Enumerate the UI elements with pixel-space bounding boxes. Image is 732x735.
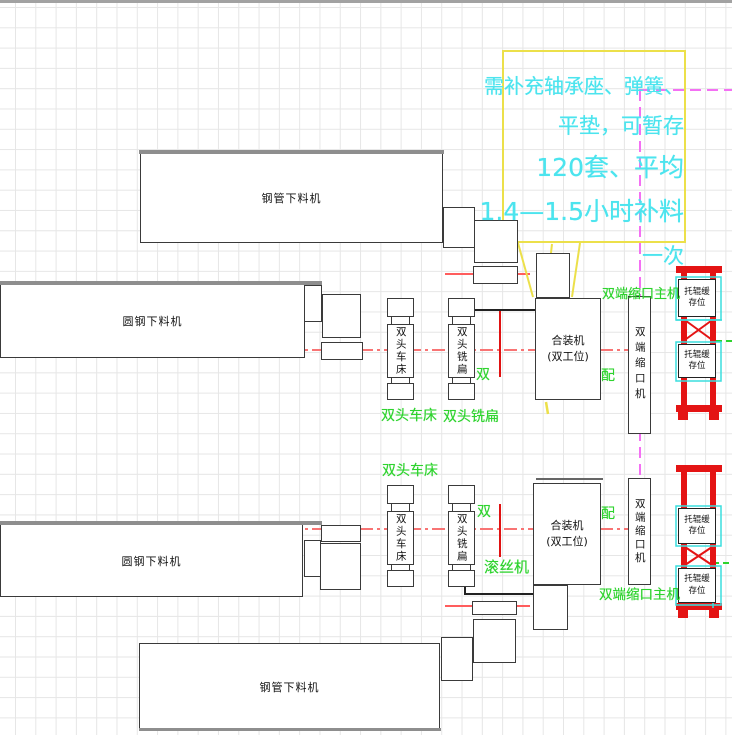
pipe-cutter-top-rail <box>139 150 444 154</box>
machine-necking-2: 双端缩口机 <box>628 478 651 585</box>
mill-1-bottom <box>448 383 475 400</box>
label-mill-1: 双头铣扁 <box>443 406 499 426</box>
machine-label: 钢管下料机 <box>262 190 322 206</box>
machine-label: 双头车床 <box>395 326 406 376</box>
annotation-text-line1: 需补充轴承座、弹簧、 <box>484 70 684 99</box>
machine-bar-cutter-1: 圆钢下料机 <box>0 284 305 358</box>
annotation-text-line2: 平垫，可暂存 <box>558 110 684 140</box>
red-cross-line2 <box>499 504 501 557</box>
feeder-box-lower-2 <box>473 619 516 663</box>
rack-slot-label: 托辊缓存位 <box>684 574 710 596</box>
machine-pipe-cutter-top: 钢管下料机 <box>140 153 443 243</box>
machine-bar-cutter-2: 圆钢下料机 <box>0 524 303 597</box>
lathe-1-top <box>387 298 414 317</box>
machine-label: 双端缩口机 <box>634 326 645 404</box>
machine-mill-1: 双头铣扁 <box>448 324 475 378</box>
bar-cutter-2-outfeed-b <box>320 543 361 590</box>
rack-slot-label: 托辊缓存位 <box>684 287 710 309</box>
label-necking-main-1: 双端缩口主机 <box>602 283 680 302</box>
mill-2-top <box>448 485 475 504</box>
bar-cutter-1-outfeed-b <box>321 342 363 360</box>
machine-label: 双头铣扁 <box>456 326 467 376</box>
label-obscured-right-2: 配 <box>601 503 615 523</box>
pipe-cutter-top-outfeed <box>443 207 475 248</box>
annotation-text-line4: 1.4—1.5小时补料 <box>479 192 684 228</box>
lathe-1-bottom <box>387 383 414 400</box>
lathe-2-bottom <box>387 570 414 587</box>
mill-2-bottom <box>448 570 475 587</box>
rack-slot-1: 托辊缓存位 <box>678 508 716 544</box>
buffer-rack-2: 托辊缓存位 托辊缓存位 <box>674 460 724 620</box>
rack-slot-label: 托辊缓存位 <box>684 350 710 372</box>
bar-cutter-1-rail <box>0 281 322 285</box>
annotation-text-line5: 一次 <box>642 240 684 270</box>
machine-label: 合装机 (双工位) <box>547 333 589 366</box>
machine-label: 双端缩口机 <box>634 498 645 566</box>
buffer-rack-1: 托辊缓存位 托辊缓存位 <box>674 260 724 422</box>
pipe-cutter-bottom-infeed <box>441 637 473 681</box>
rack-slot-1: 托辊缓存位 <box>678 279 716 317</box>
machine-label: 双头车床 <box>395 513 406 563</box>
label-lathe-2: 双头车床 <box>382 460 438 480</box>
machine-label: 圆钢下料机 <box>122 553 182 569</box>
machine-necking-1: 双端缩口机 <box>628 296 651 434</box>
pipe-cutter-bottom-rail <box>139 728 441 731</box>
annotation-text-line3: 120套、平均 <box>536 148 684 184</box>
machine-label: 钢管下料机 <box>260 679 320 695</box>
lathe-2-top <box>387 485 414 504</box>
mill-1-top <box>448 298 475 317</box>
label-obscured-left-1: 双 <box>476 364 490 384</box>
label-thread-roller: 滚丝机 <box>484 556 529 577</box>
label-obscured-left-2: 双 <box>477 501 491 521</box>
cad-layout-canvas: 需补充轴承座、弹簧、 平垫，可暂存 120套、平均 1.4—1.5小时补料 一次… <box>0 0 732 735</box>
machine-label: 双头铣扁 <box>456 513 467 563</box>
machine-mill-2: 双头铣扁 <box>448 511 475 565</box>
bar-cutter-2-connector <box>304 540 321 577</box>
connector-line-line2-h <box>464 593 533 595</box>
assembler-1-infeed <box>536 253 570 298</box>
feeder-box-upper-2 <box>473 266 518 284</box>
machine-pipe-cutter-bottom: 钢管下料机 <box>139 643 440 730</box>
machine-assembler-2: 合装机 (双工位) <box>533 483 601 585</box>
assembler-2-shadow-edge <box>536 478 603 480</box>
machine-assembler-1: 合装机 (双工位) <box>535 298 601 400</box>
machine-lathe-2: 双头车床 <box>387 511 414 565</box>
bar-cutter-2-rail <box>0 521 322 525</box>
bar-cutter-1-connector <box>304 285 322 322</box>
rack-slot-label: 托辊缓存位 <box>684 515 710 537</box>
bar-cutter-1-outfeed-a <box>322 294 361 338</box>
rack-slot-2: 托辊缓存位 <box>678 568 716 603</box>
label-obscured-right-1: 配 <box>601 365 615 385</box>
rack-slot-2: 托辊缓存位 <box>678 344 716 378</box>
feeder-box-lower-1 <box>472 601 517 615</box>
machine-label: 合装机 (双工位) <box>546 518 588 551</box>
machine-lathe-1: 双头车床 <box>387 324 414 378</box>
top-border <box>0 0 732 3</box>
label-lathe-1: 双头车床 <box>381 405 437 425</box>
label-necking-main-2: 双端缩口主机 <box>599 583 680 603</box>
bar-cutter-2-outfeed-a <box>321 525 361 542</box>
assembler-2-outfeed <box>533 585 568 630</box>
machine-label: 圆钢下料机 <box>123 313 183 329</box>
